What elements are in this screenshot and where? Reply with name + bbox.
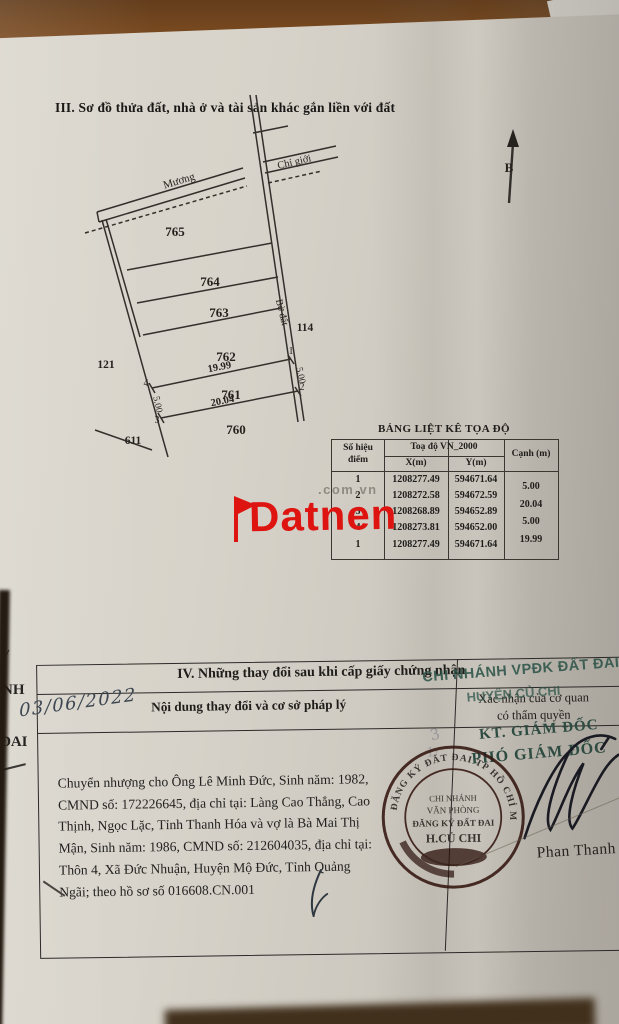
seal-line1: CHI NHÁNH bbox=[429, 793, 477, 804]
seal-line4: H.CỦ CHI bbox=[426, 831, 482, 846]
photo-of-land-certificate: III. Sơ đồ thửa đất, nhà ở và tài sản kh… bbox=[0, 0, 619, 1024]
signature bbox=[511, 729, 619, 859]
seal-line2: VĂN PHÒNG bbox=[427, 805, 480, 816]
watermark-brand: Datnen bbox=[249, 491, 398, 542]
round-seal-stamp: ĐĂNG KÝ ĐẤT ĐAI TP HỒ CHÍ MINH CHI NHÁNH… bbox=[376, 740, 530, 894]
handwritten-check-mark bbox=[299, 868, 330, 920]
transfer-text: Chuyển nhượng cho Ông Lê Minh Đức, Sinh … bbox=[58, 768, 410, 903]
seal-line3: ĐĂNG KÝ ĐẤT ĐAI bbox=[412, 818, 495, 829]
watermark-suffix: .com.vn bbox=[318, 482, 378, 497]
document-content: III. Sơ đồ thửa đất, nhà ở và tài sản kh… bbox=[0, 0, 619, 1024]
